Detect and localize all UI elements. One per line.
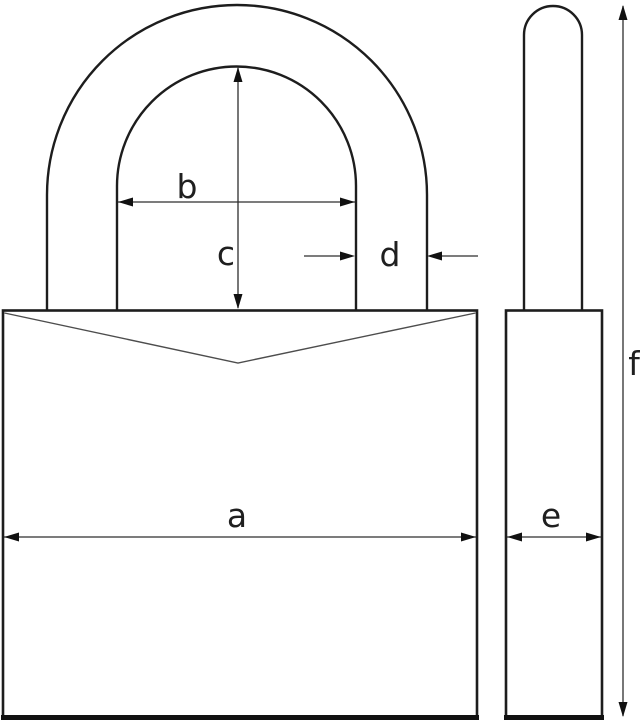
dim-b-arrowhead-right <box>340 198 355 207</box>
dim-c-arrowhead-bottom <box>234 294 243 309</box>
dim-label-c: c <box>217 234 235 273</box>
shackle-inner-edge <box>117 66 356 311</box>
dim-f-arrowhead-top <box>619 5 628 20</box>
dimension-f: f <box>619 5 640 717</box>
dim-f-arrowhead-bottom <box>619 702 628 717</box>
dim-d-arrowhead-right <box>427 252 442 261</box>
dim-label-f: f <box>628 344 640 383</box>
side-view <box>504 6 604 718</box>
dim-b-arrowhead-left <box>118 198 133 207</box>
shackle-side-profile <box>524 6 582 311</box>
diagram-canvas: b c d a e <box>0 0 640 720</box>
padlock-dimension-diagram: b c d a e <box>0 0 640 720</box>
shackle-outer-edge <box>47 5 427 311</box>
dimension-d: d <box>304 235 478 274</box>
dimension-c: c <box>217 67 243 309</box>
dim-label-d: d <box>380 235 401 274</box>
dim-label-b: b <box>177 167 198 206</box>
dim-d-arrowhead-left <box>340 252 355 261</box>
dim-label-a: a <box>227 496 247 535</box>
front-view <box>1 5 479 718</box>
dim-label-e: e <box>541 496 561 535</box>
dim-c-arrowhead-top <box>234 67 243 82</box>
dimension-b: b <box>118 167 355 207</box>
